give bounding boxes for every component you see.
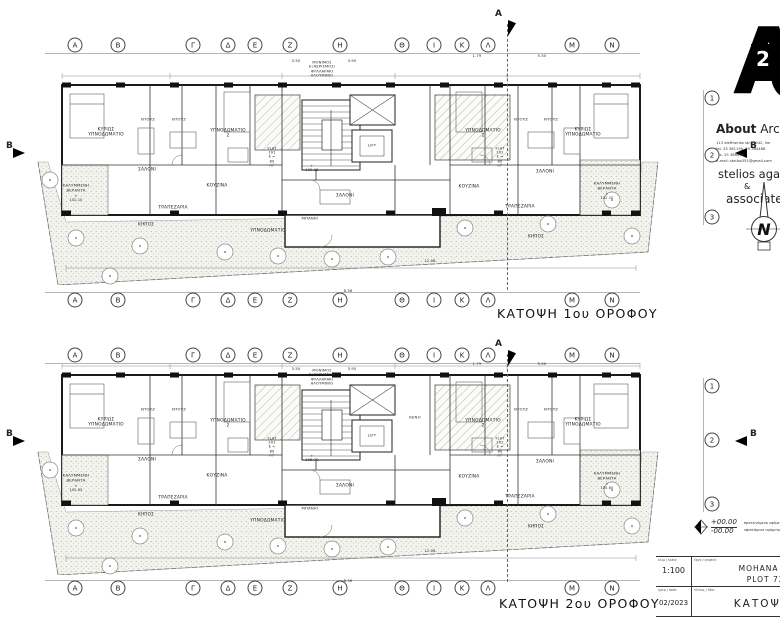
room-label: ΚΑΛΥΜΜΕΝΗ ΒΕΡΑΝΤΑ xyxy=(594,181,620,190)
room-label: ΚΟΥΖΙΝΑ xyxy=(458,184,479,189)
grid-bubble: Β xyxy=(111,38,126,53)
grid-bubble: Β xyxy=(111,293,126,308)
grid-bubble: Δ xyxy=(221,348,236,363)
grid-bubble: Ν xyxy=(605,581,620,596)
room-label: 1.79 xyxy=(473,54,482,58)
room-label: 12.98 xyxy=(424,259,435,263)
project-name: MOHANA LTD xyxy=(692,564,780,573)
room-label: ΤΡΑΠΕΖΑΡΙΑ xyxy=(505,204,534,209)
floor-plan-drawing-1 xyxy=(20,70,680,285)
grid-bubble: Μ xyxy=(565,38,580,53)
room-label: + 102.10 xyxy=(600,192,613,200)
section-line xyxy=(507,24,508,290)
room-label: ΚΗΠΟΣ xyxy=(138,221,154,226)
grid-bubble: Μ xyxy=(565,581,580,596)
section-marker-b: Β xyxy=(6,429,13,439)
date-label: ημερ / date: xyxy=(658,588,677,592)
room-label: FLAT 202 Ε = 80 m² xyxy=(495,437,504,458)
room-label: 3.95 xyxy=(348,367,357,371)
date-value: 02/2023 xyxy=(656,599,691,607)
grid-bubble: Ι xyxy=(427,581,442,596)
grid-bubble: Κ xyxy=(455,581,470,596)
grid-bubble: Θ xyxy=(395,293,410,308)
grid-bubble: Ι xyxy=(427,38,442,53)
section-marker-a: Α xyxy=(495,9,502,19)
room-label: ΥΠΝΟΔΩΜΑΤΙΟ 2 xyxy=(465,129,501,140)
plan-1-title: ΚΑΤΟΨΗ 1ου ΟΡΟΦΟΥ xyxy=(497,306,658,321)
room-label: ΝΤΟΥΖ xyxy=(514,408,528,413)
sheet-title-value: ΚΑΤΟΨΕΙΣ xyxy=(692,598,780,610)
grid-bubble: Η xyxy=(333,38,348,53)
grid-bubble: 2 xyxy=(705,433,720,448)
grid-bubble: Ι xyxy=(427,293,442,308)
grid-bubble: Λ xyxy=(481,38,496,53)
grid-bubble: Α xyxy=(68,38,83,53)
room-label: ΣΑΛΟΝΙ xyxy=(536,459,554,464)
room-label: ΚΗΠΟΣ xyxy=(528,523,544,528)
grid-bubble: Β xyxy=(111,348,126,363)
room-label: 5.50 xyxy=(538,362,547,366)
grid-bubble: Γ xyxy=(186,348,201,363)
room-label: 12.98 xyxy=(424,549,435,553)
room-label: 5.50 xyxy=(538,54,547,58)
date-cell: ημερ / date: 02/2023 xyxy=(656,587,692,617)
grid-bubble: Α xyxy=(68,581,83,596)
room-label: 1.79 xyxy=(473,362,482,366)
level-legend: +00.00 -00.00 προτεινόμενο υψόμετρο υφισ… xyxy=(694,519,780,535)
level-existing: -00.00 xyxy=(711,527,737,536)
room-label: ΣΑΛΟΝΙ xyxy=(138,457,156,462)
grid-bubble: Ζ xyxy=(283,581,298,596)
grid-bubble: Μ xyxy=(565,348,580,363)
grid-bubble: Λ xyxy=(481,293,496,308)
room-label: ΜΠΑΝΙΟ xyxy=(302,507,319,512)
room-label: ΜΟΝΙΜΟΣ ΕΞΑΕΡΙΣΜΟΣ/ ΦΥΛΛΑΡΑΚΙ ΑΛΟΥΜΙΝΙΟ xyxy=(309,60,335,77)
room-label: ΚΥΡΙΩΣ ΥΠΝΟΔΩΜΑΤΙΟ xyxy=(88,418,124,429)
title-block: κλιμ / scale: 1:100 έργο / project: MOHA… xyxy=(656,556,780,617)
project-label: έργο / project: xyxy=(694,558,717,562)
grid-bubble: Ν xyxy=(605,293,620,308)
room-label: ΝΤΟΥΖ xyxy=(544,408,558,413)
room-label: ΝΤΟΥΖ xyxy=(172,408,186,413)
grid-bubble: Ζ xyxy=(283,38,298,53)
room-label: ΥΠΝΟΔΩΜΑΤΙΟ 2 xyxy=(210,129,246,140)
firm-tel: tel. 25 361195, 25 364488 xyxy=(716,147,772,153)
room-label: ΝΤΟΥΖ xyxy=(141,408,155,413)
room-label: ΜΠΑΝΙΟ xyxy=(302,217,319,222)
room-label: ΚΟΥΖΙΝΑ xyxy=(206,183,227,188)
room-label: ΥΠΝΟΔΩΜΑΤΙΟ 2 xyxy=(210,419,246,430)
room-label: + 105.70 xyxy=(305,454,318,462)
grid-bubble: Λ xyxy=(481,348,496,363)
room-label: ΚΑΛΥΜΜΕΝΗ ΒΕΡΑΝΤΑ xyxy=(594,471,620,480)
room-label: ΣΑΛΟΝΙ xyxy=(336,193,354,198)
grid-bubble: Η xyxy=(333,293,348,308)
section-flag-icon xyxy=(735,436,747,446)
room-label: ΚΗΠΟΣ xyxy=(528,233,544,238)
room-label: LIFT xyxy=(368,144,376,149)
grid-line xyxy=(703,90,704,225)
room-label: FLAT 102 Ε = 80 m² xyxy=(495,147,504,168)
scale-value: 1:100 xyxy=(656,566,691,575)
room-label: ΣΑΛΟΝΙ xyxy=(536,169,554,174)
grid-line xyxy=(703,378,704,512)
grid-bubble: Α xyxy=(68,293,83,308)
plan-2-title: ΚΑΤΟΨΗ 2ου ΟΡΟΦΟΥ xyxy=(499,596,660,611)
north-letter: N xyxy=(757,220,771,239)
room-label: ΣΑΛΟΝΙ xyxy=(336,483,354,488)
room-label: ΣΑΛΟΝΙ xyxy=(138,167,156,172)
project-plot: PLOT 725 xyxy=(692,575,780,584)
grid-bubble: Ι xyxy=(427,348,442,363)
floor-plan-drawing-2 xyxy=(20,360,680,575)
grid-bubble: Κ xyxy=(455,293,470,308)
sheet-title-label: τίτλος / title: xyxy=(694,588,715,592)
grid-bubble: Θ xyxy=(395,348,410,363)
room-label: ΚΑΛΥΜΜΕΝΗ ΒΕΡΑΝΤΑ xyxy=(63,183,89,192)
room-label: ΚΥΡΙΩΣ ΥΠΝΟΔΩΜΑΤΙΟ xyxy=(565,128,601,139)
room-label: ΤΡΑΠΕΖΑΡΙΑ xyxy=(158,495,187,500)
room-label: ΥΠΝΟΔΩΜΑΤΙΟ xyxy=(250,518,286,523)
section-flag-icon xyxy=(13,148,25,158)
level-symbol-icon xyxy=(694,519,708,535)
grid-bubble: Δ xyxy=(221,38,236,53)
grid-bubble: Η xyxy=(333,348,348,363)
grid-bubble: Ν xyxy=(605,348,620,363)
grid-bubble: Κ xyxy=(455,348,470,363)
firm-name: About Archi xyxy=(716,122,780,136)
grid-bubble: Α xyxy=(68,348,83,363)
section-flag-icon xyxy=(508,20,516,36)
room-label: ΤΡΑΠΕΖΑΡΙΑ xyxy=(158,205,187,210)
project-cell: έργο / project: MOHANA LTD PLOT 725 xyxy=(692,557,780,587)
grid-bubble: Ζ xyxy=(283,348,298,363)
room-label: ΚΥΡΙΩΣ ΥΠΝΟΔΩΜΑΤΙΟ xyxy=(88,128,124,139)
room-label: ΚΑΛΥΜΜΕΝΗ ΒΕΡΑΝΤΑ xyxy=(63,473,89,482)
principal-name: stelios agathok xyxy=(718,167,780,181)
firm-name-rest: Archi xyxy=(756,122,780,136)
grid-bubble: Β xyxy=(111,581,126,596)
grid-bubble: Δ xyxy=(221,581,236,596)
section-line xyxy=(507,354,508,582)
section-flag-icon xyxy=(13,436,25,446)
section-marker-a: Α xyxy=(495,339,502,349)
room-label: + 105.65 xyxy=(69,484,82,492)
scale-label: κλιμ / scale: xyxy=(658,558,677,562)
grid-bubble: Ε xyxy=(248,581,263,596)
room-label: ΝΤΟΥΖ xyxy=(172,118,186,123)
room-label: 3.50 xyxy=(292,367,301,371)
scale-cell: κλιμ / scale: 1:100 xyxy=(656,557,692,587)
north-arrow-icon: N xyxy=(744,180,780,252)
grid-bubble: Μ xyxy=(565,293,580,308)
room-label: + 105.65 xyxy=(600,482,613,490)
room-label: ΝΤΟΥΖ xyxy=(514,118,528,123)
firm-logo-number: 2 xyxy=(751,44,775,74)
room-label: ΚΟΥΖΙΝΑ xyxy=(206,473,227,478)
level-labels: προτεινόμενο υψόμετρο υφιστάμενο υψόμετρ… xyxy=(744,520,780,535)
section-marker-b: Β xyxy=(750,429,757,439)
room-label: ΥΠΝΟΔΩΜΑΤΙΟ xyxy=(250,228,286,233)
room-label: + 102.10 xyxy=(69,194,82,202)
room-label: 8.36 xyxy=(344,289,353,293)
firm-email: e-mail: stelios351@gmail.com xyxy=(716,159,772,165)
grid-bubble: 1 xyxy=(705,379,720,394)
firm-name-bold: About xyxy=(716,122,756,136)
section-marker-b: Β xyxy=(6,141,13,151)
grid-bubble: 3 xyxy=(705,210,720,225)
grid-bubble: Γ xyxy=(186,581,201,596)
level-proposed-label: προτεινόμενο υψόμετρο xyxy=(744,520,780,527)
room-label: FLAT 201 Ε = 80 m² xyxy=(267,437,276,458)
grid-bubble: Γ xyxy=(186,38,201,53)
grid-line xyxy=(45,53,640,54)
grid-bubble: Ε xyxy=(248,293,263,308)
room-label: 3.50 xyxy=(292,59,301,63)
room-label: ΝΤΟΥΖ xyxy=(141,118,155,123)
drawing-sheet: Α Α Β Β Β Β ΑΒΓΔΕΖΗΘΙΚΛΜΝΑΒΓΔΕΖΗΘΙΚΛΜΝΑΒ… xyxy=(0,0,780,637)
room-label: LIFT xyxy=(368,434,376,439)
grid-bubble: Ε xyxy=(248,348,263,363)
grid-bubble: Ζ xyxy=(283,293,298,308)
room-label: ΚΗΠΟΣ xyxy=(138,511,154,516)
room-label: ΚΥΡΙΩΣ ΥΠΝΟΔΩΜΑΤΙΟ xyxy=(565,418,601,429)
grid-bubble: Θ xyxy=(395,38,410,53)
grid-bubble: Κ xyxy=(455,38,470,53)
room-label: FLAT 101 Ε = 80 m² xyxy=(267,147,276,168)
grid-bubble: 3 xyxy=(705,497,720,512)
level-values: +00.00 -00.00 xyxy=(711,519,737,535)
room-label: ΚΕΝΟ xyxy=(409,416,421,421)
level-existing-label: υφιστάμενο υψόμετρο xyxy=(744,527,780,534)
grid-bubble: Ε xyxy=(248,38,263,53)
grid-bubble: Θ xyxy=(395,581,410,596)
firm-contact: 113 eleftherias str., 3042, lim tel. 25 … xyxy=(716,141,772,165)
grid-bubble: Η xyxy=(333,581,348,596)
grid-bubble: Ν xyxy=(605,38,620,53)
grid-bubble: Γ xyxy=(186,293,201,308)
level-proposed: +00.00 xyxy=(711,519,737,527)
grid-bubble: 1 xyxy=(705,91,720,106)
room-label: ΤΡΑΠΕΖΑΡΙΑ xyxy=(505,494,534,499)
room-label: ΝΤΟΥΖ xyxy=(544,118,558,123)
room-label: ΚΟΥΖΙΝΑ xyxy=(458,474,479,479)
grid-bubble: 2 xyxy=(705,148,720,163)
grid-line xyxy=(45,363,640,364)
room-label: 3.95 xyxy=(348,59,357,63)
grid-bubble: Δ xyxy=(221,293,236,308)
grid-bubble: Λ xyxy=(481,581,496,596)
room-label: ΜΟΝΙΜΟΣ ΕΞΑΕΡΙΣΜΟΣ/ ΦΥΛΛΑΡΑΚΙ ΑΛΟΥΜΙΝΙΟ xyxy=(309,368,335,385)
sheet-title-cell: τίτλος / title: ΚΑΤΟΨΕΙΣ xyxy=(692,587,780,617)
room-label: ΥΠΝΟΔΩΜΑΤΙΟ 2 xyxy=(465,419,501,430)
room-label: + 102.15 xyxy=(305,164,318,172)
